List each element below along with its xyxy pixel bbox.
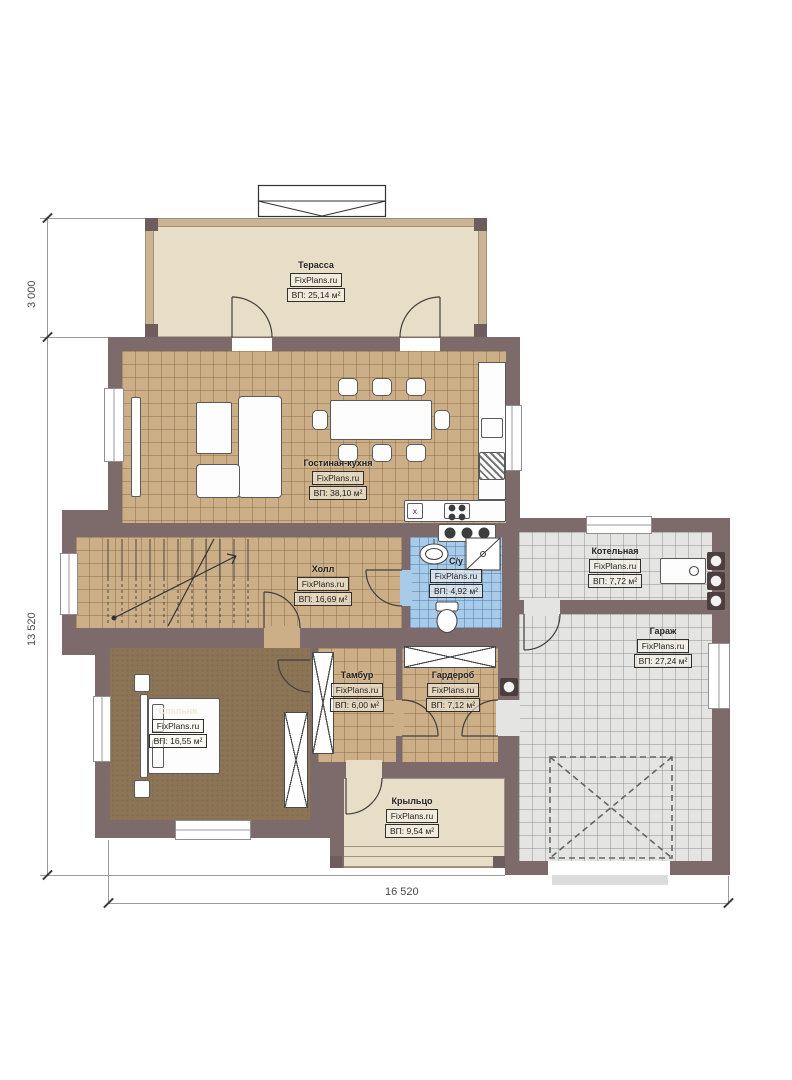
room-label-bedroom: Спальня FixPlans.ru ВП: 16,55 м² xyxy=(128,706,228,748)
room-area: ВП: 7,12 м² xyxy=(426,698,480,712)
room-name: Терасса xyxy=(266,260,366,270)
hob-island xyxy=(438,524,496,542)
terrace-post xyxy=(474,324,487,337)
brand-label: FixPlans.ru xyxy=(312,471,365,485)
room-area: ВП: 16,69 м² xyxy=(294,592,353,606)
room-label-wardrobe: Гардероб FixPlans.ru ВП: 7,12 м² xyxy=(408,670,498,712)
hall-bath-opening xyxy=(400,570,412,606)
tv-unit xyxy=(131,397,141,497)
boiler-garage-opening xyxy=(524,598,560,616)
brand-label: FixPlans.ru xyxy=(331,683,384,697)
room-label-hall: Холл FixPlans.ru ВП: 16,69 м² xyxy=(275,564,371,606)
room-name: Гостиная-кухня xyxy=(283,458,393,468)
room-label-garage: Гараж FixPlans.ru ВП: 27,24 м² xyxy=(613,626,713,668)
room-area: ВП: 6,00 м² xyxy=(330,698,384,712)
porch-wall-left xyxy=(330,778,344,868)
room-name: Холл xyxy=(275,564,371,574)
hall-tambour-opening xyxy=(264,626,300,648)
dining-chair xyxy=(338,378,358,396)
brand-label: FixPlans.ru xyxy=(290,273,343,287)
extension-line xyxy=(108,840,109,903)
room-area: ВП: 7,72 м² xyxy=(588,574,642,588)
sofa xyxy=(238,396,282,498)
brand-label: FixPlans.ru xyxy=(430,569,483,583)
room-name: С/у xyxy=(417,556,495,566)
dining-chair xyxy=(434,410,450,430)
room-area: ВП: 25,14 м² xyxy=(287,288,346,302)
extension-line xyxy=(40,875,505,876)
terrace-door-opening xyxy=(400,338,440,351)
stove xyxy=(444,503,470,519)
sofa-chaise xyxy=(196,464,240,498)
porch-post xyxy=(493,856,505,868)
nightstand xyxy=(134,780,150,798)
dimension-line-bottom xyxy=(108,903,728,904)
terrace-post xyxy=(474,218,487,231)
boiler-window-top xyxy=(586,516,652,534)
porch-step xyxy=(344,856,504,857)
terrace-post xyxy=(145,324,158,337)
dining-table xyxy=(330,400,432,440)
brand-label: FixPlans.ru xyxy=(589,559,642,573)
nightstand xyxy=(134,674,150,692)
living-window-left xyxy=(104,388,124,462)
wall-vent xyxy=(707,572,725,590)
porch-step xyxy=(344,846,504,847)
porch-post xyxy=(330,856,342,868)
extension-line xyxy=(40,337,108,338)
brand-label: FixPlans.ru xyxy=(427,683,480,697)
fridge xyxy=(479,452,505,480)
brand-label: FixPlans.ru xyxy=(297,577,350,591)
floor-plan: 3 000 13 520 16 520 xyxy=(0,0,792,1080)
wall-vent xyxy=(707,592,725,610)
terrace-door-opening xyxy=(232,338,272,351)
terrace-post xyxy=(145,218,158,231)
dimension-line-left xyxy=(47,218,48,875)
room-label-porch: Крыльцо FixPlans.ru ВП: 9,54 м² xyxy=(362,796,462,838)
kitchen-sink xyxy=(481,418,503,438)
brand-label: FixPlans.ru xyxy=(152,719,205,733)
extension-line xyxy=(728,876,729,903)
dimension-left-top: 3 000 xyxy=(26,248,38,308)
room-label-terrace: Терасса FixPlans.ru ВП: 25,14 м² xyxy=(266,260,366,302)
room-area: ВП: 27,24 м² xyxy=(634,654,693,668)
extension-line xyxy=(40,218,145,219)
room-area: ВП: 38,10 м² xyxy=(309,486,368,500)
garage-apron xyxy=(552,875,668,885)
brand-label: FixPlans.ru xyxy=(386,809,439,823)
bedroom-wardrobe-cabinet xyxy=(284,712,308,808)
room-name: Спальня xyxy=(128,706,228,716)
room-area: ВП: 16,55 м² xyxy=(149,734,208,748)
dimension-bottom: 16 520 xyxy=(385,886,419,898)
room-label-boiler: Котельная FixPlans.ru ВП: 7,72 м² xyxy=(565,546,665,588)
dining-chair xyxy=(406,444,426,462)
dining-chair xyxy=(312,410,328,430)
tambour-porch-opening xyxy=(346,760,382,779)
room-name: Гараж xyxy=(613,626,713,636)
kitchen-marker-box: x xyxy=(407,503,423,519)
boiler-unit xyxy=(660,558,706,584)
room-area: ВП: 4,92 м² xyxy=(429,584,483,598)
room-name: Котельная xyxy=(565,546,665,556)
wardrobe-garage-opening xyxy=(496,700,520,736)
porch-step xyxy=(344,866,504,867)
dining-chair xyxy=(406,378,426,396)
room-label-tambour: Тамбур FixPlans.ru ВП: 6,00 м² xyxy=(314,670,400,712)
terrace-railing-left xyxy=(145,218,154,337)
garage-door-opening xyxy=(548,861,670,876)
room-name: Крыльцо xyxy=(362,796,462,806)
room-area: ВП: 9,54 м² xyxy=(385,824,439,838)
bedroom-window-bottom xyxy=(175,820,251,840)
room-name: Тамбур xyxy=(314,670,400,680)
wardrobe-cabinet xyxy=(404,646,496,668)
wall-vent xyxy=(500,678,518,696)
coffee-table xyxy=(196,402,232,454)
bedroom-window-left xyxy=(93,696,111,762)
room-label-bathroom: С/у FixPlans.ru ВП: 4,92 м² xyxy=(417,556,495,598)
dining-chair xyxy=(372,378,392,396)
room-name: Гардероб xyxy=(408,670,498,680)
brand-label: FixPlans.ru xyxy=(637,639,690,653)
dimension-left-side: 13 520 xyxy=(26,576,38,646)
room-label-living: Гостиная-кухня FixPlans.ru ВП: 38,10 м² xyxy=(283,458,393,500)
terrace-railing-top xyxy=(145,218,487,227)
wall-vent xyxy=(707,552,725,570)
hall-window-left xyxy=(60,553,78,615)
terrace-railing-right xyxy=(478,218,487,337)
